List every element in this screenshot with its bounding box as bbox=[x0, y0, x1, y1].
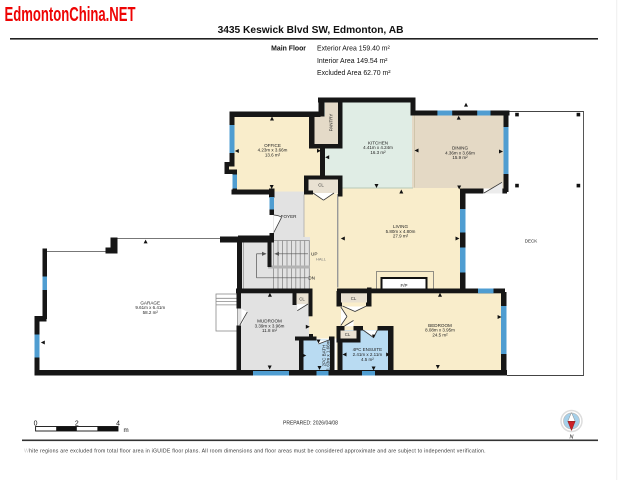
svg-text:UP: UP bbox=[311, 251, 318, 256]
svg-text:15.9 m²: 15.9 m² bbox=[452, 155, 468, 160]
svg-text:White regions are excluded fro: White regions are excluded from total fl… bbox=[24, 449, 486, 455]
svg-text:4: 4 bbox=[116, 420, 120, 427]
svg-text:CL: CL bbox=[299, 297, 305, 302]
svg-text:HALL: HALL bbox=[316, 257, 327, 262]
svg-text:m: m bbox=[124, 427, 129, 434]
svg-text:13.6 m²: 13.6 m² bbox=[265, 152, 281, 157]
svg-text:DECK: DECK bbox=[525, 239, 538, 244]
svg-text:Interior Area 149.54 m²: Interior Area 149.54 m² bbox=[317, 58, 388, 65]
svg-text:1.63m x 1.66m: 1.63m x 1.66m bbox=[326, 340, 331, 370]
svg-text:4.5 m²: 4.5 m² bbox=[361, 357, 374, 362]
svg-text:24.5 m²: 24.5 m² bbox=[432, 332, 448, 337]
svg-text:Excluded Area 62.70 m²: Excluded Area 62.70 m² bbox=[317, 70, 391, 77]
svg-text:58.2 m²: 58.2 m² bbox=[143, 310, 159, 315]
svg-text:FOYER: FOYER bbox=[281, 214, 298, 219]
svg-text:16.3 m²: 16.3 m² bbox=[370, 150, 386, 155]
svg-text:2: 2 bbox=[75, 420, 79, 427]
svg-text:CL: CL bbox=[345, 332, 351, 337]
svg-text:PREPARED: 2026/04/08: PREPARED: 2026/04/08 bbox=[283, 421, 338, 427]
svg-text:Exterior Area 159.40 m²: Exterior Area 159.40 m² bbox=[317, 46, 390, 53]
svg-text:CL: CL bbox=[351, 296, 357, 301]
svg-text:EdmontonChina.NET: EdmontonChina.NET bbox=[5, 4, 136, 26]
svg-text:11.8 m²: 11.8 m² bbox=[262, 328, 277, 333]
svg-text:F/P: F/P bbox=[400, 283, 407, 288]
svg-text:0: 0 bbox=[34, 420, 38, 427]
svg-text:Main Floor: Main Floor bbox=[271, 46, 306, 53]
svg-text:PANTRY: PANTRY bbox=[328, 114, 333, 132]
svg-text:3435 Keswick Blvd SW, Edmonton: 3435 Keswick Blvd SW, Edmonton, AB bbox=[218, 25, 404, 36]
svg-text:CL: CL bbox=[318, 183, 324, 188]
svg-text:27.9 m²: 27.9 m² bbox=[393, 234, 409, 239]
svg-text:DN: DN bbox=[308, 275, 315, 280]
